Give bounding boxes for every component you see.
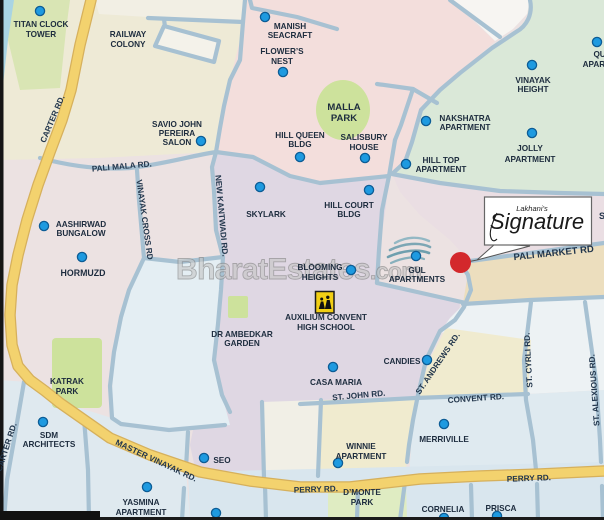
svg-text:BLDG: BLDG [337, 210, 360, 219]
svg-text:CASA MARIA: CASA MARIA [310, 378, 362, 387]
svg-text:RAILWAY: RAILWAY [110, 30, 147, 39]
svg-text:BUNGALOW: BUNGALOW [56, 229, 105, 238]
svg-text:S: S [599, 211, 604, 221]
svg-text:Signature: Signature [490, 209, 584, 234]
svg-text:SALISBURY: SALISBURY [340, 133, 388, 142]
svg-text:HILL QUEEN: HILL QUEEN [275, 131, 325, 140]
svg-text:MERRIVILLE: MERRIVILLE [419, 435, 469, 444]
svg-text:QUEEN: QUEEN [593, 50, 604, 59]
svg-text:HEIGHT: HEIGHT [518, 85, 549, 94]
svg-text:HEIGHTS: HEIGHTS [302, 273, 339, 282]
svg-text:KATRAK: KATRAK [50, 377, 84, 386]
svg-text:AUXILIUM CONVENT: AUXILIUM CONVENT [285, 313, 367, 322]
svg-text:SKYLARK: SKYLARK [246, 210, 286, 219]
svg-text:MANISH: MANISH [274, 22, 306, 31]
svg-text:BLDG: BLDG [288, 140, 311, 149]
svg-text:JOLLY: JOLLY [517, 144, 543, 153]
svg-text:SEACRAFT: SEACRAFT [268, 31, 313, 40]
svg-text:WINNIE: WINNIE [346, 442, 376, 451]
svg-text:FLOWER’S: FLOWER’S [260, 47, 304, 56]
svg-text:HILL COURT: HILL COURT [324, 201, 373, 210]
svg-text:SAVIO JOHN: SAVIO JOHN [152, 120, 202, 129]
svg-text:VINAYAK: VINAYAK [515, 76, 550, 85]
svg-text:APARTMENTS: APARTMENTS [389, 275, 446, 284]
svg-text:DR AMBEDKAR: DR AMBEDKAR [211, 330, 273, 339]
svg-text:D’MONTE: D’MONTE [343, 488, 381, 497]
svg-text:TOWER: TOWER [26, 30, 56, 39]
svg-text:BLOOMING: BLOOMING [297, 263, 342, 272]
svg-text:NEST: NEST [271, 57, 293, 66]
svg-text:MALLA: MALLA [327, 102, 360, 113]
svg-text:APARTMENT: APARTMENT [505, 155, 556, 164]
svg-text:APARTMENT: APARTMENT [116, 508, 167, 517]
svg-text:SEO: SEO [213, 456, 231, 465]
svg-text:COLONY: COLONY [110, 40, 146, 49]
svg-text:AASHIRWAD: AASHIRWAD [56, 220, 106, 229]
svg-text:APARTMENT: APARTMENT [440, 123, 491, 132]
svg-text:APARTMENT: APARTMENT [416, 165, 467, 174]
svg-text:PARK: PARK [331, 113, 357, 124]
svg-text:APARTMENT: APARTMENT [336, 452, 387, 461]
svg-text:PEREIRA: PEREIRA [159, 129, 195, 138]
svg-text:HOUSE: HOUSE [349, 143, 379, 152]
svg-text:GARDEN: GARDEN [224, 339, 260, 348]
svg-text:CORNELIA: CORNELIA [422, 505, 465, 514]
svg-text:SALON: SALON [163, 138, 192, 147]
svg-text:HIGH SCHOOL: HIGH SCHOOL [297, 323, 355, 332]
svg-text:GUL: GUL [408, 266, 425, 275]
svg-text:APARTMENT: APARTMENT [583, 60, 604, 69]
svg-text:SDM: SDM [40, 431, 58, 440]
svg-text:PERRY RD.: PERRY RD. [294, 484, 338, 495]
svg-text:PRISCA: PRISCA [486, 504, 517, 513]
svg-text:HORMUZD: HORMUZD [61, 268, 106, 278]
svg-text:CANDIES: CANDIES [384, 357, 421, 366]
svg-text:ARCHITECTS: ARCHITECTS [23, 440, 76, 449]
svg-text:PERRY RD.: PERRY RD. [507, 473, 551, 484]
svg-text:PARK: PARK [56, 387, 79, 396]
svg-text:HILL TOP: HILL TOP [423, 156, 461, 165]
svg-text:PARK: PARK [351, 498, 374, 507]
svg-text:TITAN CLOCK: TITAN CLOCK [14, 20, 69, 29]
svg-text:NAKSHATRA: NAKSHATRA [439, 114, 490, 123]
svg-text:YASMINA: YASMINA [122, 498, 159, 507]
